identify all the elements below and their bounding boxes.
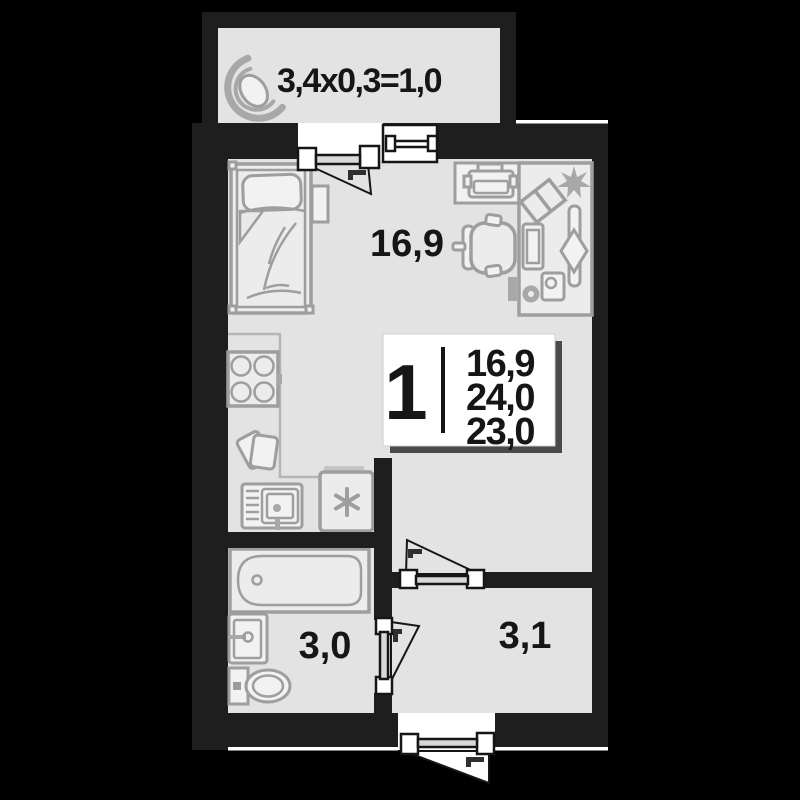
door-jamb (400, 570, 417, 588)
unit-info-card: 1 16,9 24,0 23,0 (383, 334, 562, 453)
door-jamb (360, 146, 379, 168)
nightstand-icon (312, 186, 328, 222)
washbasin-icon (228, 614, 267, 663)
door-leaf (416, 576, 468, 584)
bed-icon (229, 162, 313, 313)
tablet-icon (542, 273, 564, 300)
balcony-dimensions-label: 3,4x0,3=1,0 (277, 62, 442, 100)
wall-edge-line-bottom-left (228, 747, 398, 751)
stove-icon (228, 352, 282, 406)
keyboard-icon (523, 224, 543, 269)
door-jamb (401, 734, 418, 754)
wall-edge-line-bottom-right (495, 747, 608, 751)
door-leaf (380, 632, 388, 679)
door-leaf (418, 739, 477, 747)
door-jamb (477, 733, 494, 754)
bathroom-area-label: 3,0 (299, 625, 352, 667)
window-glazing (393, 141, 430, 147)
floor-plan: 3,4x0,3=1,0 (0, 0, 800, 800)
area-without-balcony-value: 23,0 (466, 411, 534, 453)
hallway-area-label: 3,1 (499, 615, 552, 657)
floor-plan-page: 3,4x0,3=1,0 (0, 0, 800, 800)
window (383, 125, 437, 162)
card-divider (441, 347, 445, 433)
door-jamb (298, 148, 316, 170)
living-room-area-label: 16,9 (370, 223, 444, 265)
wall-edge-line-top (516, 120, 608, 124)
door-leaf (316, 155, 360, 164)
fridge-icon (320, 466, 373, 531)
desk-side-unit (508, 277, 517, 301)
kitchen-sink-icon (242, 484, 302, 530)
desk-icon (508, 163, 592, 315)
bathtub-icon (230, 549, 369, 612)
balcony: 3,4x0,3=1,0 (202, 12, 516, 130)
door-jamb (467, 570, 484, 588)
room-count: 1 (384, 348, 427, 436)
printer-shelf (455, 163, 519, 203)
pillow-icon (242, 174, 301, 211)
hallway: 3,1 (499, 615, 552, 657)
toilet-icon (229, 668, 290, 704)
mouse-icon (523, 286, 540, 303)
